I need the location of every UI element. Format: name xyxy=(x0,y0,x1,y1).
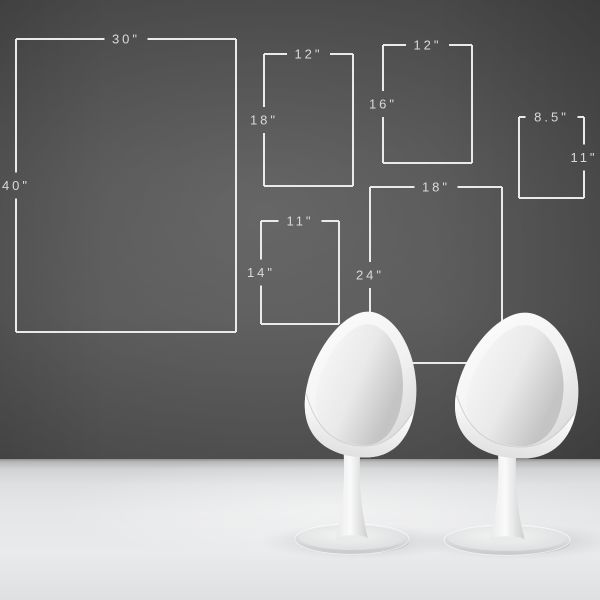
egg-chair-left xyxy=(292,303,433,554)
egg-chair-right xyxy=(441,304,597,555)
chairs-layer xyxy=(0,0,600,600)
product-photo-size-guide: 30"40"12"18"12"16"8.5"11"11"14"18"24" xyxy=(0,0,600,600)
